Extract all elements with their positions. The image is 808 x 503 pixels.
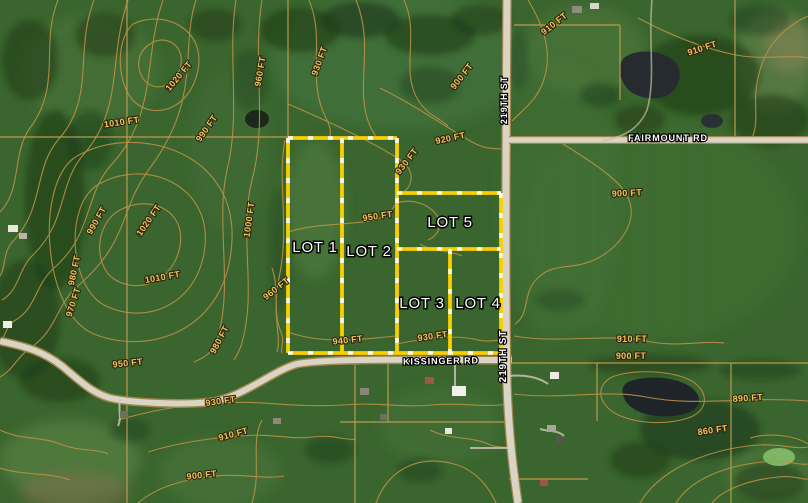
aerial-parcel-map: 1020 FT 1010 FT 990 FT 960 FT 930 FT 910… bbox=[0, 0, 808, 503]
lot-1-label: LOT 1 bbox=[292, 239, 337, 256]
contour-label: 900 FT bbox=[616, 351, 647, 361]
contour-label: 900 FT bbox=[611, 187, 642, 199]
lot-5-label: LOT 5 bbox=[427, 214, 472, 231]
lot-2-label: LOT 2 bbox=[346, 243, 391, 260]
map-canvas: 1020 FT 1010 FT 990 FT 960 FT 930 FT 910… bbox=[0, 0, 808, 503]
contour-label: 910 FT bbox=[617, 334, 648, 344]
pond-green bbox=[763, 448, 795, 466]
road-label-219th-south: 219TH ST bbox=[498, 330, 509, 383]
road-label-kissinger: KISSINGER RD bbox=[403, 355, 479, 366]
road-label-219th-north: 219TH ST bbox=[499, 76, 509, 124]
pond-west bbox=[245, 110, 269, 128]
lot-3-label: LOT 3 bbox=[399, 295, 444, 312]
lot-4-label: LOT 4 bbox=[455, 295, 500, 312]
road-label-fairmount: FAIRMOUNT RD bbox=[628, 133, 708, 143]
contour-label: 890 FT bbox=[732, 392, 763, 404]
pond-small-east bbox=[701, 114, 723, 128]
